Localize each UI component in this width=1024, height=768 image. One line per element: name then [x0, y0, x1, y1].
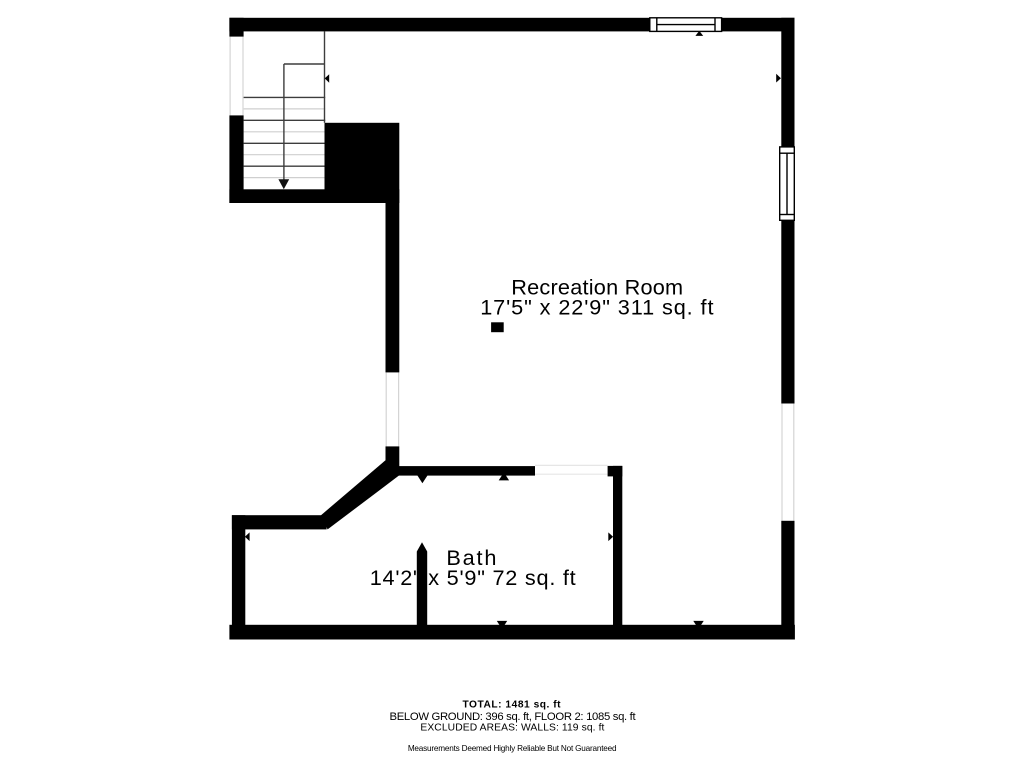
svg-text:TOTAL: 1481 sq. ft: TOTAL: 1481 sq. ft: [462, 700, 561, 711]
svg-text:Measurements Deemed Highly Rel: Measurements Deemed Highly Reliable But …: [408, 744, 617, 753]
svg-text:17'5" x 22'9" 311 sq. ft: 17'5" x 22'9" 311 sq. ft: [480, 295, 714, 320]
svg-text:EXCLUDED AREAS: WALLS: 119 sq.: EXCLUDED AREAS: WALLS: 119 sq. ft: [420, 723, 604, 734]
svg-text:14'2" x 5'9" 72 sq. ft: 14'2" x 5'9" 72 sq. ft: [370, 565, 577, 590]
svg-text:BELOW GROUND: 396 sq. ft, FLOO: BELOW GROUND: 396 sq. ft, FLOOR 2: 1085 …: [389, 711, 636, 723]
